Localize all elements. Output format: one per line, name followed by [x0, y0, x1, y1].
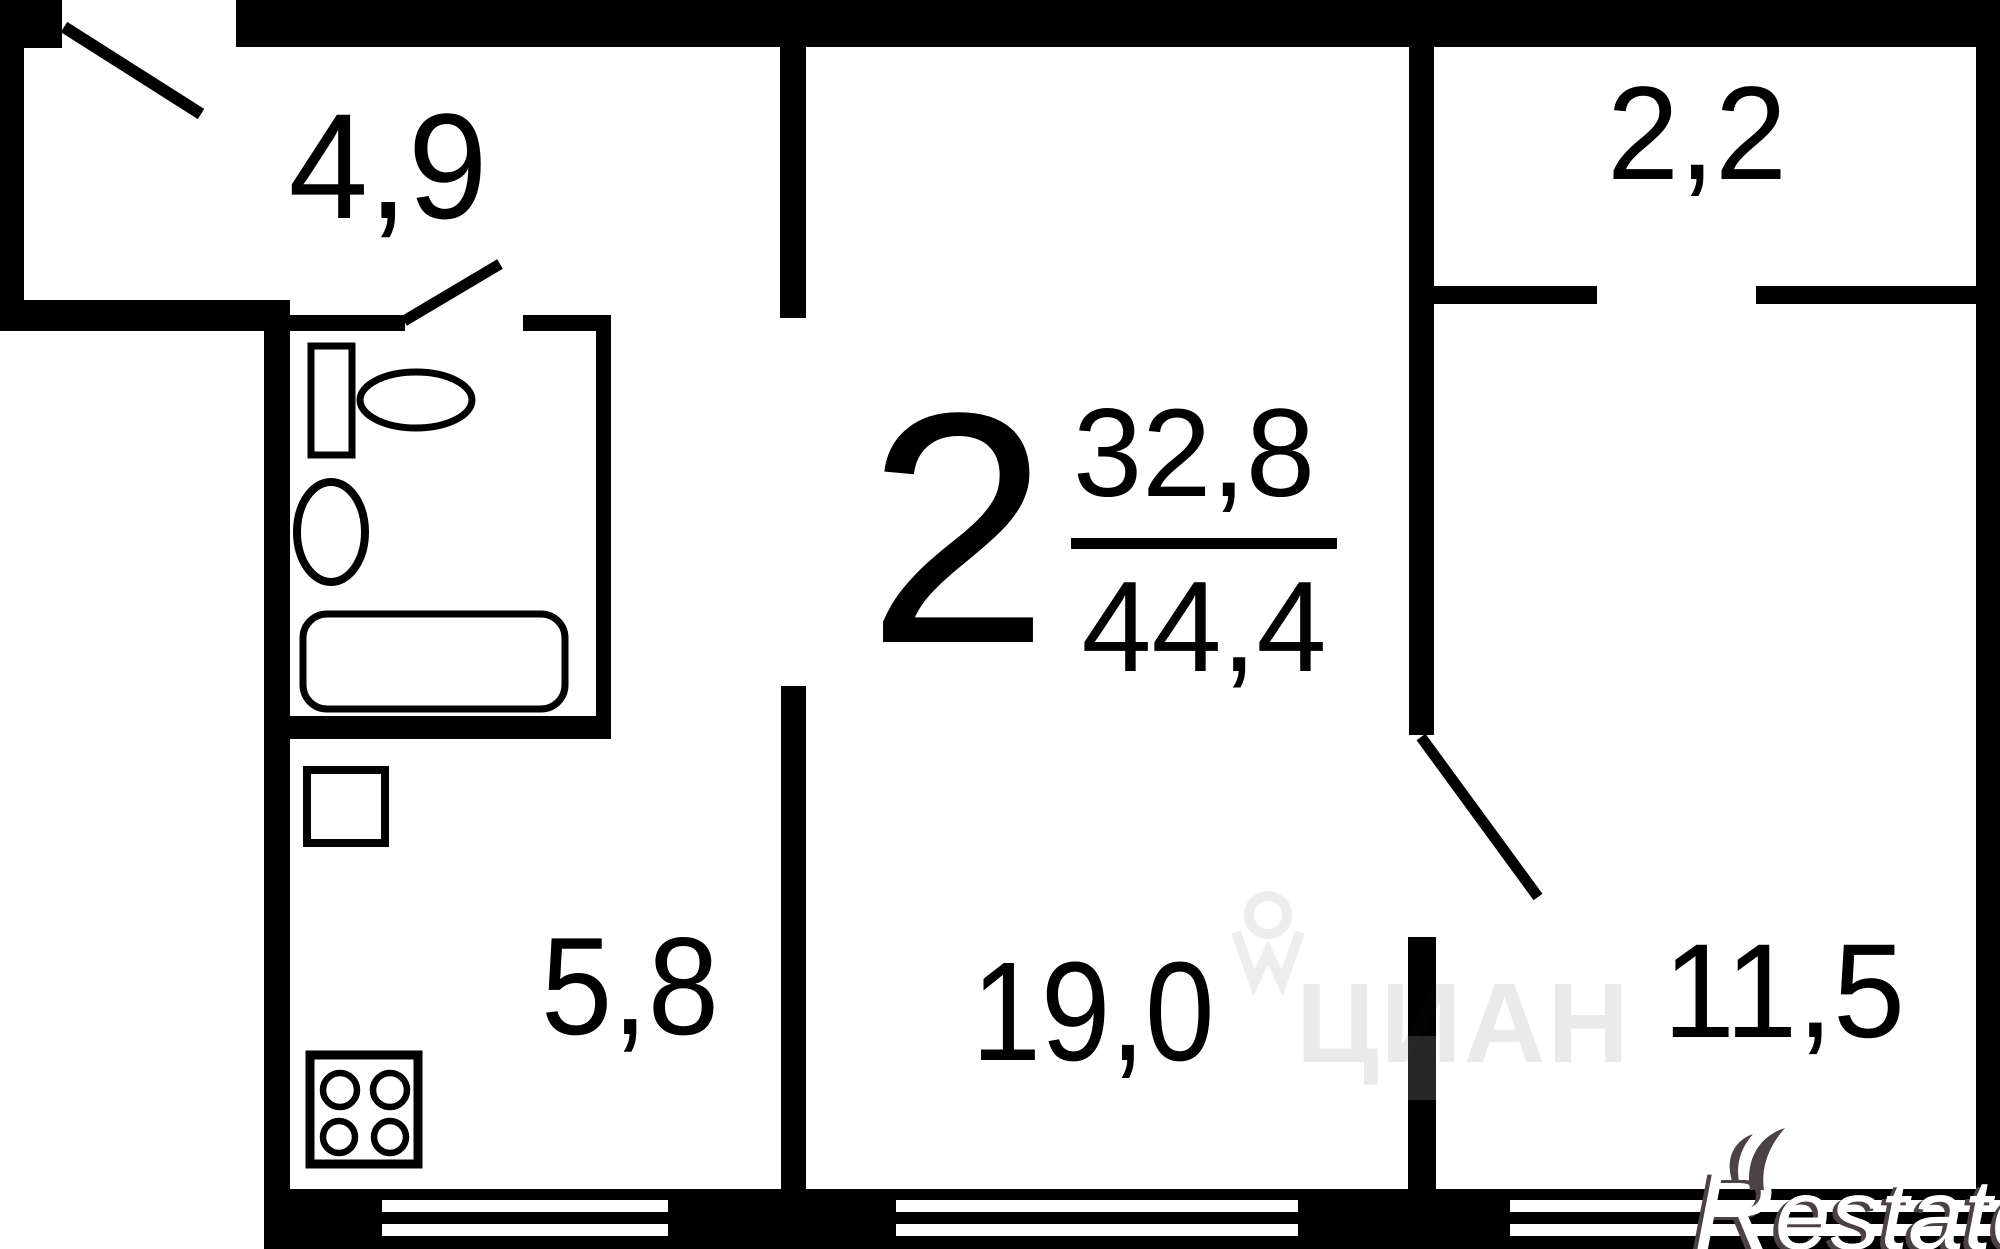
svg-text:32,8: 32,8 — [1073, 384, 1315, 523]
svg-text:4,9: 4,9 — [289, 82, 488, 250]
svg-text:11,5: 11,5 — [1663, 917, 1905, 1066]
svg-text:5,8: 5,8 — [541, 909, 719, 1064]
svg-text:44,4: 44,4 — [1082, 555, 1327, 699]
svg-text:Restate: Restate — [1694, 1148, 2000, 1249]
svg-text:2: 2 — [867, 344, 1050, 712]
svg-text:19,0: 19,0 — [972, 932, 1215, 1090]
svg-text:ЦИАН: ЦИАН — [1296, 960, 1631, 1086]
svg-text:2,2: 2,2 — [1607, 60, 1787, 208]
